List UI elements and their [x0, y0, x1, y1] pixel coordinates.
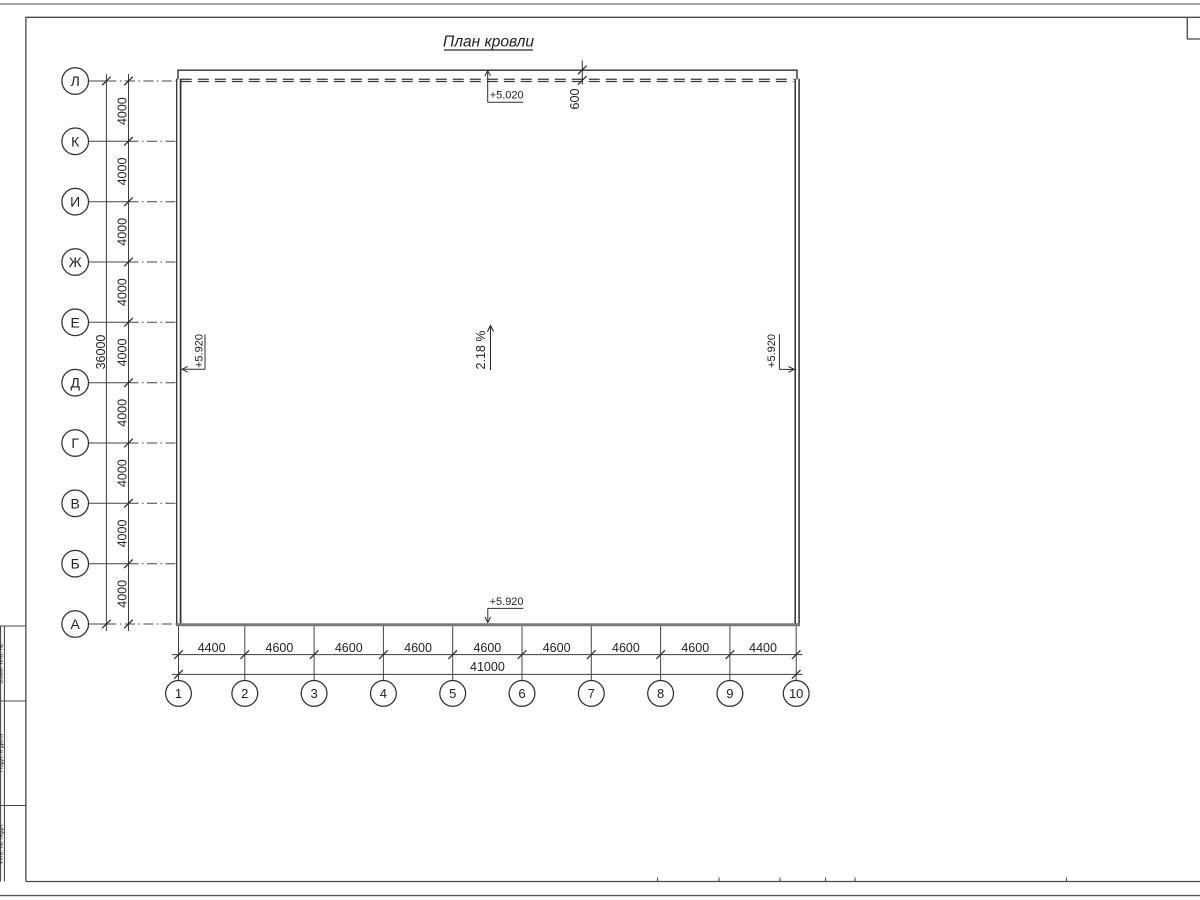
svg-text:4600: 4600 — [266, 641, 294, 655]
svg-text:2.18 %: 2.18 % — [474, 331, 488, 370]
svg-text:Д: Д — [70, 375, 80, 391]
svg-text:36000: 36000 — [94, 335, 108, 370]
svg-text:5: 5 — [449, 686, 456, 701]
svg-text:4000: 4000 — [115, 580, 129, 608]
svg-text:+5.920: +5.920 — [490, 596, 524, 608]
svg-text:В: В — [71, 495, 80, 511]
svg-text:4600: 4600 — [335, 641, 363, 655]
svg-text:4000: 4000 — [115, 520, 129, 548]
svg-text:+5.920: +5.920 — [766, 334, 778, 368]
svg-text:4600: 4600 — [612, 641, 640, 655]
svg-text:Взам. инв. №: Взам. инв. № — [0, 643, 5, 683]
svg-text:А: А — [71, 616, 81, 632]
svg-text:4400: 4400 — [198, 641, 226, 655]
svg-text:+5.920: +5.920 — [193, 334, 205, 368]
svg-text:Ж: Ж — [69, 254, 82, 270]
svg-text:Инв. № подл.: Инв. № подл. — [0, 823, 5, 864]
svg-text:Л: Л — [71, 73, 80, 89]
svg-text:9: 9 — [726, 686, 733, 701]
svg-text:1: 1 — [175, 686, 182, 701]
svg-text:4600: 4600 — [404, 641, 432, 655]
svg-text:4000: 4000 — [115, 218, 129, 246]
svg-text:Б: Б — [71, 556, 80, 572]
svg-text:4000: 4000 — [115, 158, 129, 186]
svg-text:4400: 4400 — [749, 641, 777, 655]
svg-text:600: 600 — [568, 89, 582, 110]
svg-text:И: И — [70, 194, 80, 210]
svg-text:4600: 4600 — [543, 641, 571, 655]
svg-text:4600: 4600 — [681, 641, 709, 655]
svg-text:4000: 4000 — [115, 399, 129, 427]
svg-text:4000: 4000 — [115, 278, 129, 306]
svg-text:6: 6 — [518, 686, 525, 701]
svg-text:2: 2 — [241, 686, 248, 701]
svg-text:41000: 41000 — [470, 660, 505, 674]
svg-text:Е: Е — [71, 314, 80, 330]
svg-text:8: 8 — [657, 686, 664, 701]
svg-text:7: 7 — [588, 686, 595, 701]
svg-text:4600: 4600 — [473, 641, 501, 655]
svg-text:3: 3 — [310, 686, 317, 701]
svg-text:10: 10 — [789, 686, 803, 701]
svg-text:+5.020: +5.020 — [490, 90, 524, 102]
svg-text:4: 4 — [380, 686, 387, 701]
svg-text:4000: 4000 — [115, 339, 129, 367]
svg-text:4000: 4000 — [115, 459, 129, 487]
svg-text:План кровли: План кровли — [443, 34, 534, 51]
svg-text:Г: Г — [71, 435, 79, 451]
svg-text:К: К — [71, 133, 80, 149]
svg-text:Подп. и дата: Подп. и дата — [0, 733, 5, 772]
svg-text:4000: 4000 — [115, 97, 129, 125]
